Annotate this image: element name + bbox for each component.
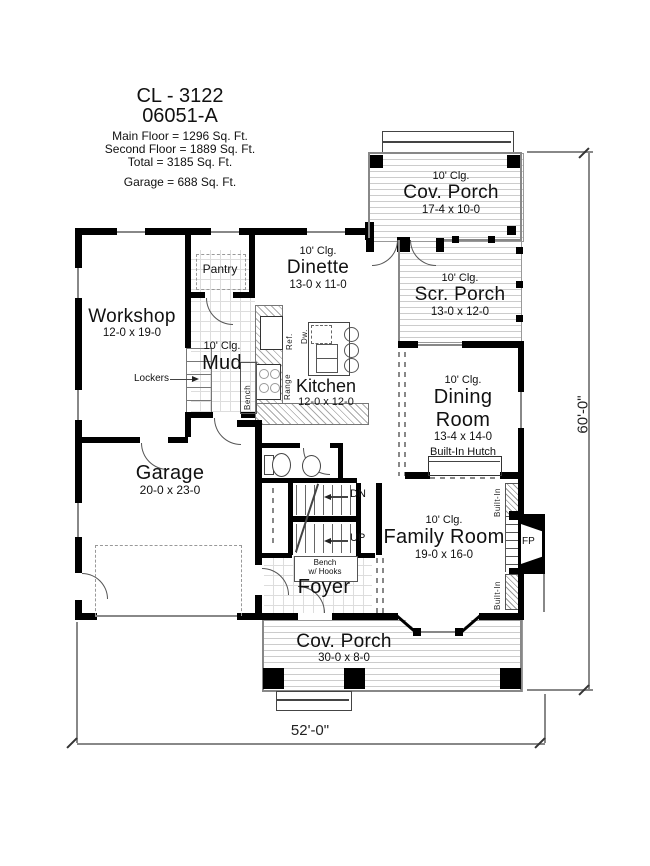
room-scr-porch: 10' Clg. Scr. Porch 13-0 x 12-0 [399,272,521,318]
lockers-arrow-icon [192,376,199,382]
chair [344,327,359,342]
room-name: Workshop [74,306,190,327]
dimension-height: 60'-0" [575,380,592,450]
garage-area: Garage = 688 Sq. Ft. [60,175,300,189]
room-dinette: 10' Clg. Dinette 13-0 x 11-0 [256,245,380,291]
room-name: Dinette [256,257,380,278]
wall-segment [75,613,97,620]
ceiling-label: 10' Clg. [399,272,521,284]
wall-segment [405,472,430,479]
fireplace-label: FP [522,536,542,547]
cased-opening [376,558,378,613]
ceiling-label: 10' Clg. [406,374,520,386]
porch-steps-top [382,131,514,154]
wall-segment [518,482,524,514]
window [117,231,145,233]
stairs-down [296,485,356,515]
chair [344,343,359,358]
room-pantry: Pantry [193,263,247,276]
wall-segment [168,437,188,443]
room-size: 12-0 x 19-0 [74,327,190,340]
room-size: 13-4 x 14-0 [406,431,520,444]
main-floor-area: Main Floor = 1296 Sq. Ft. [60,129,300,143]
cased-opening [430,477,500,479]
room-name: Cov. Porch [276,631,412,652]
up-arrow-line [330,540,348,542]
burner [259,369,269,379]
room-size: 19-0 x 16-0 [376,549,512,562]
room-dining: 10' Clg. Dining Room 13-4 x 14-0 [406,374,520,444]
up-label: UP [350,532,365,544]
wall-segment [145,228,211,235]
chimney-line [543,574,545,612]
room-mud: 10' Clg. Mud [191,340,253,375]
room-size: 20-0 x 23-0 [108,484,232,497]
room-name: Scr. Porch [399,284,521,305]
porch-post [507,226,516,235]
refrigerator [260,316,283,350]
room-name: Family Room [376,526,512,548]
screen-post [516,247,523,254]
room-size: 12-0 x 12-0 [282,396,370,408]
window [418,344,462,346]
porch-edge [368,152,522,154]
wall-segment [249,228,255,292]
porch-post [500,668,521,689]
burner [259,383,269,393]
wall-segment [237,420,262,427]
room-name: Kitchen [282,376,370,396]
second-floor-area: Second Floor = 1889 Sq. Ft. [60,142,300,156]
room-cov-porch-top: 10' Clg. Cov. Porch 17-4 x 10-0 [388,170,514,216]
wall-segment [262,553,292,558]
wall-segment [233,292,255,298]
lockers-label: Lockers [134,373,169,384]
room-name: Garage [108,462,232,484]
porch-post [370,155,383,168]
porch-post [507,155,520,168]
room-workshop: Workshop 12-0 x 19-0 [74,306,190,340]
hutch-shelf-line [428,461,500,462]
room-foyer: Foyer [288,576,360,598]
wall-segment [479,613,524,620]
wall-segment [75,228,82,268]
built-in-lower-label: Built-In [493,574,502,610]
cased-opening [398,352,400,476]
cased-opening [382,558,384,613]
porch-edge [520,152,522,240]
room-size: 30-0 x 8-0 [276,652,412,665]
ceiling-label: 10' Clg. [376,514,512,526]
wall-segment [75,537,82,573]
wall-segment [398,341,418,348]
room-cov-porch-bottom: Cov. Porch 30-0 x 8-0 [276,631,412,665]
dishwasher-label: Dw. [300,326,309,344]
dimension-line-bottom [77,743,545,745]
window [307,231,345,233]
bay-window [419,631,459,633]
toilet-bowl [272,453,291,477]
ceiling-label: 10' Clg. [388,170,514,182]
plan-variant: 06051-A [95,105,265,128]
wall-segment [332,613,398,620]
refrigerator-label: Ref. [285,320,294,350]
window [211,231,239,233]
wall-segment [185,412,213,418]
dishwasher [311,325,332,344]
down-arrow-icon [324,494,331,500]
room-size: 13-0 x 12-0 [399,306,521,319]
wall-segment [262,443,300,448]
ceiling-label: 10' Clg. [256,245,380,257]
window [77,268,79,298]
stair-landing-wall [293,516,356,522]
wall-segment [185,292,205,298]
room-name: Cov. Porch [388,182,514,203]
room-kitchen: Kitchen 12-0 x 12-0 [282,376,370,408]
window [77,390,79,420]
garage-door-dashed [95,545,242,616]
down-label: DN [350,488,366,500]
wall-segment [262,613,298,620]
bay-post [455,628,463,636]
up-arrow-icon [324,538,331,544]
down-arrow-line [330,496,348,498]
wall-segment [356,553,375,558]
chair [344,358,359,373]
island-cabinet [316,358,338,373]
dimension-tick [66,737,77,748]
wall-segment [82,437,140,443]
bay-post [413,628,421,636]
total-area: Total = 3185 Sq. Ft. [60,155,300,169]
room-family: 10' Clg. Family Room 19-0 x 16-0 [376,514,512,562]
lockers-arrow-line [170,379,192,380]
room-garage: Garage 20-0 x 23-0 [108,462,232,498]
porch-step-line [383,141,511,143]
built-in-hutch [428,456,502,476]
dimension-width: 52'-0" [260,722,360,739]
burner [270,383,280,393]
room-name: Room [406,409,520,431]
room-name: Dining [406,386,520,408]
porch-post [344,668,365,689]
extension-line [76,622,78,743]
ceiling-label: 10' Clg. [191,340,253,352]
extension-line [544,694,546,743]
wall-segment [462,341,524,348]
wall-segment [338,443,343,483]
sink [302,455,321,477]
room-name: Mud [191,352,253,374]
closet-rod [272,488,274,548]
wall-segment [75,420,82,503]
porch-step-line [277,699,349,701]
window [77,503,79,537]
porch-steps-bottom [276,691,352,711]
wall-segment [255,595,262,620]
door-jamb [436,238,444,252]
floor-plan: CL - 3122 06051-A Main Floor = 1296 Sq. … [0,0,650,866]
burner [270,369,280,379]
wall-segment [255,412,262,565]
screen-post [452,236,459,243]
porch-post [263,668,284,689]
wall-segment [500,472,524,479]
room-size: 13-0 x 11-0 [256,279,380,292]
island-cabinet [316,344,338,359]
screen-post [488,236,495,243]
wall-segment [262,478,357,483]
built-in-upper-label: Built-In [493,483,502,517]
window [520,392,522,428]
room-size: 17-4 x 10-0 [388,204,514,217]
